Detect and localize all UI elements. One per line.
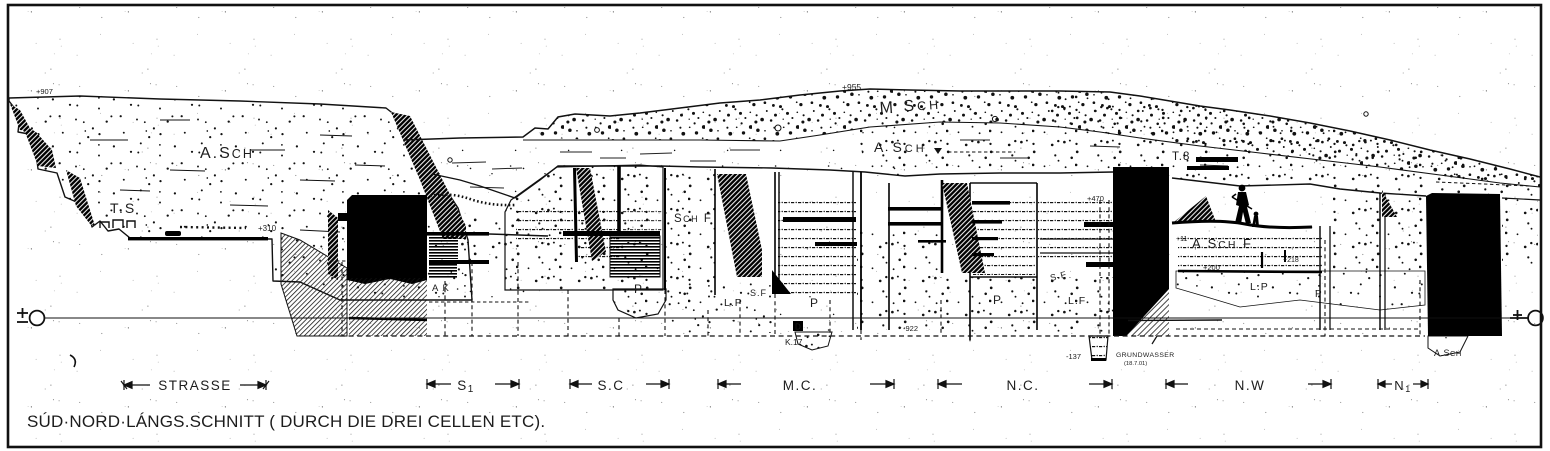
- svg-text:N.C.: N.C.: [1007, 378, 1040, 393]
- svg-text:-137: -137: [1066, 352, 1081, 361]
- svg-text:L.P: L.P: [724, 297, 743, 309]
- svg-text:-922: -922: [903, 324, 918, 333]
- svg-text:S.F: S.F: [750, 288, 767, 298]
- svg-text:P: P: [993, 293, 1001, 307]
- svg-text:M.C.: M.C.: [783, 378, 818, 393]
- svg-text:A.SCH: A.SCH: [1434, 348, 1462, 358]
- svg-text:P: P: [1315, 289, 1322, 300]
- svg-text:A.SCH: A.SCH: [200, 145, 254, 162]
- svg-text:N.W: N.W: [1235, 378, 1266, 393]
- svg-text:T.S: T.S: [110, 200, 136, 216]
- svg-text:+218: +218: [1283, 257, 1299, 264]
- svg-text:L.P: L.P: [1250, 281, 1269, 293]
- svg-text:+955: +955: [842, 82, 861, 92]
- svg-text:SCH F: SCH F: [674, 213, 712, 225]
- svg-text:P: P: [634, 282, 642, 296]
- svg-text:STRASSE: STRASSE: [158, 378, 232, 393]
- svg-text:+907: +907: [36, 87, 53, 96]
- svg-text:L.F: L.F: [1068, 295, 1086, 307]
- svg-text:+310: +310: [258, 224, 277, 233]
- svg-text:+470: +470: [1087, 194, 1104, 203]
- svg-text:T.8: T.8: [1172, 151, 1190, 163]
- svg-text:+200: +200: [1203, 263, 1220, 272]
- svg-text:+11: +11: [1176, 236, 1187, 243]
- svg-text:S.C: S.C: [597, 378, 624, 393]
- svg-text:A SCH F: A SCH F: [1192, 236, 1253, 251]
- svg-text:P: P: [810, 296, 818, 310]
- svg-text:GRUNDWASSER: GRUNDWASSER: [1116, 352, 1175, 359]
- svg-text:(18.7.01): (18.7.01): [1124, 361, 1147, 367]
- svg-text:D: D: [795, 323, 801, 332]
- svg-text:K.17: K.17: [785, 337, 803, 347]
- svg-text:SÚD·NORD·LÁNGS.SCHNITT ( DURCH: SÚD·NORD·LÁNGS.SCHNITT ( DURCH DIE DREI …: [27, 412, 545, 431]
- svg-text:A K: A K: [432, 283, 450, 294]
